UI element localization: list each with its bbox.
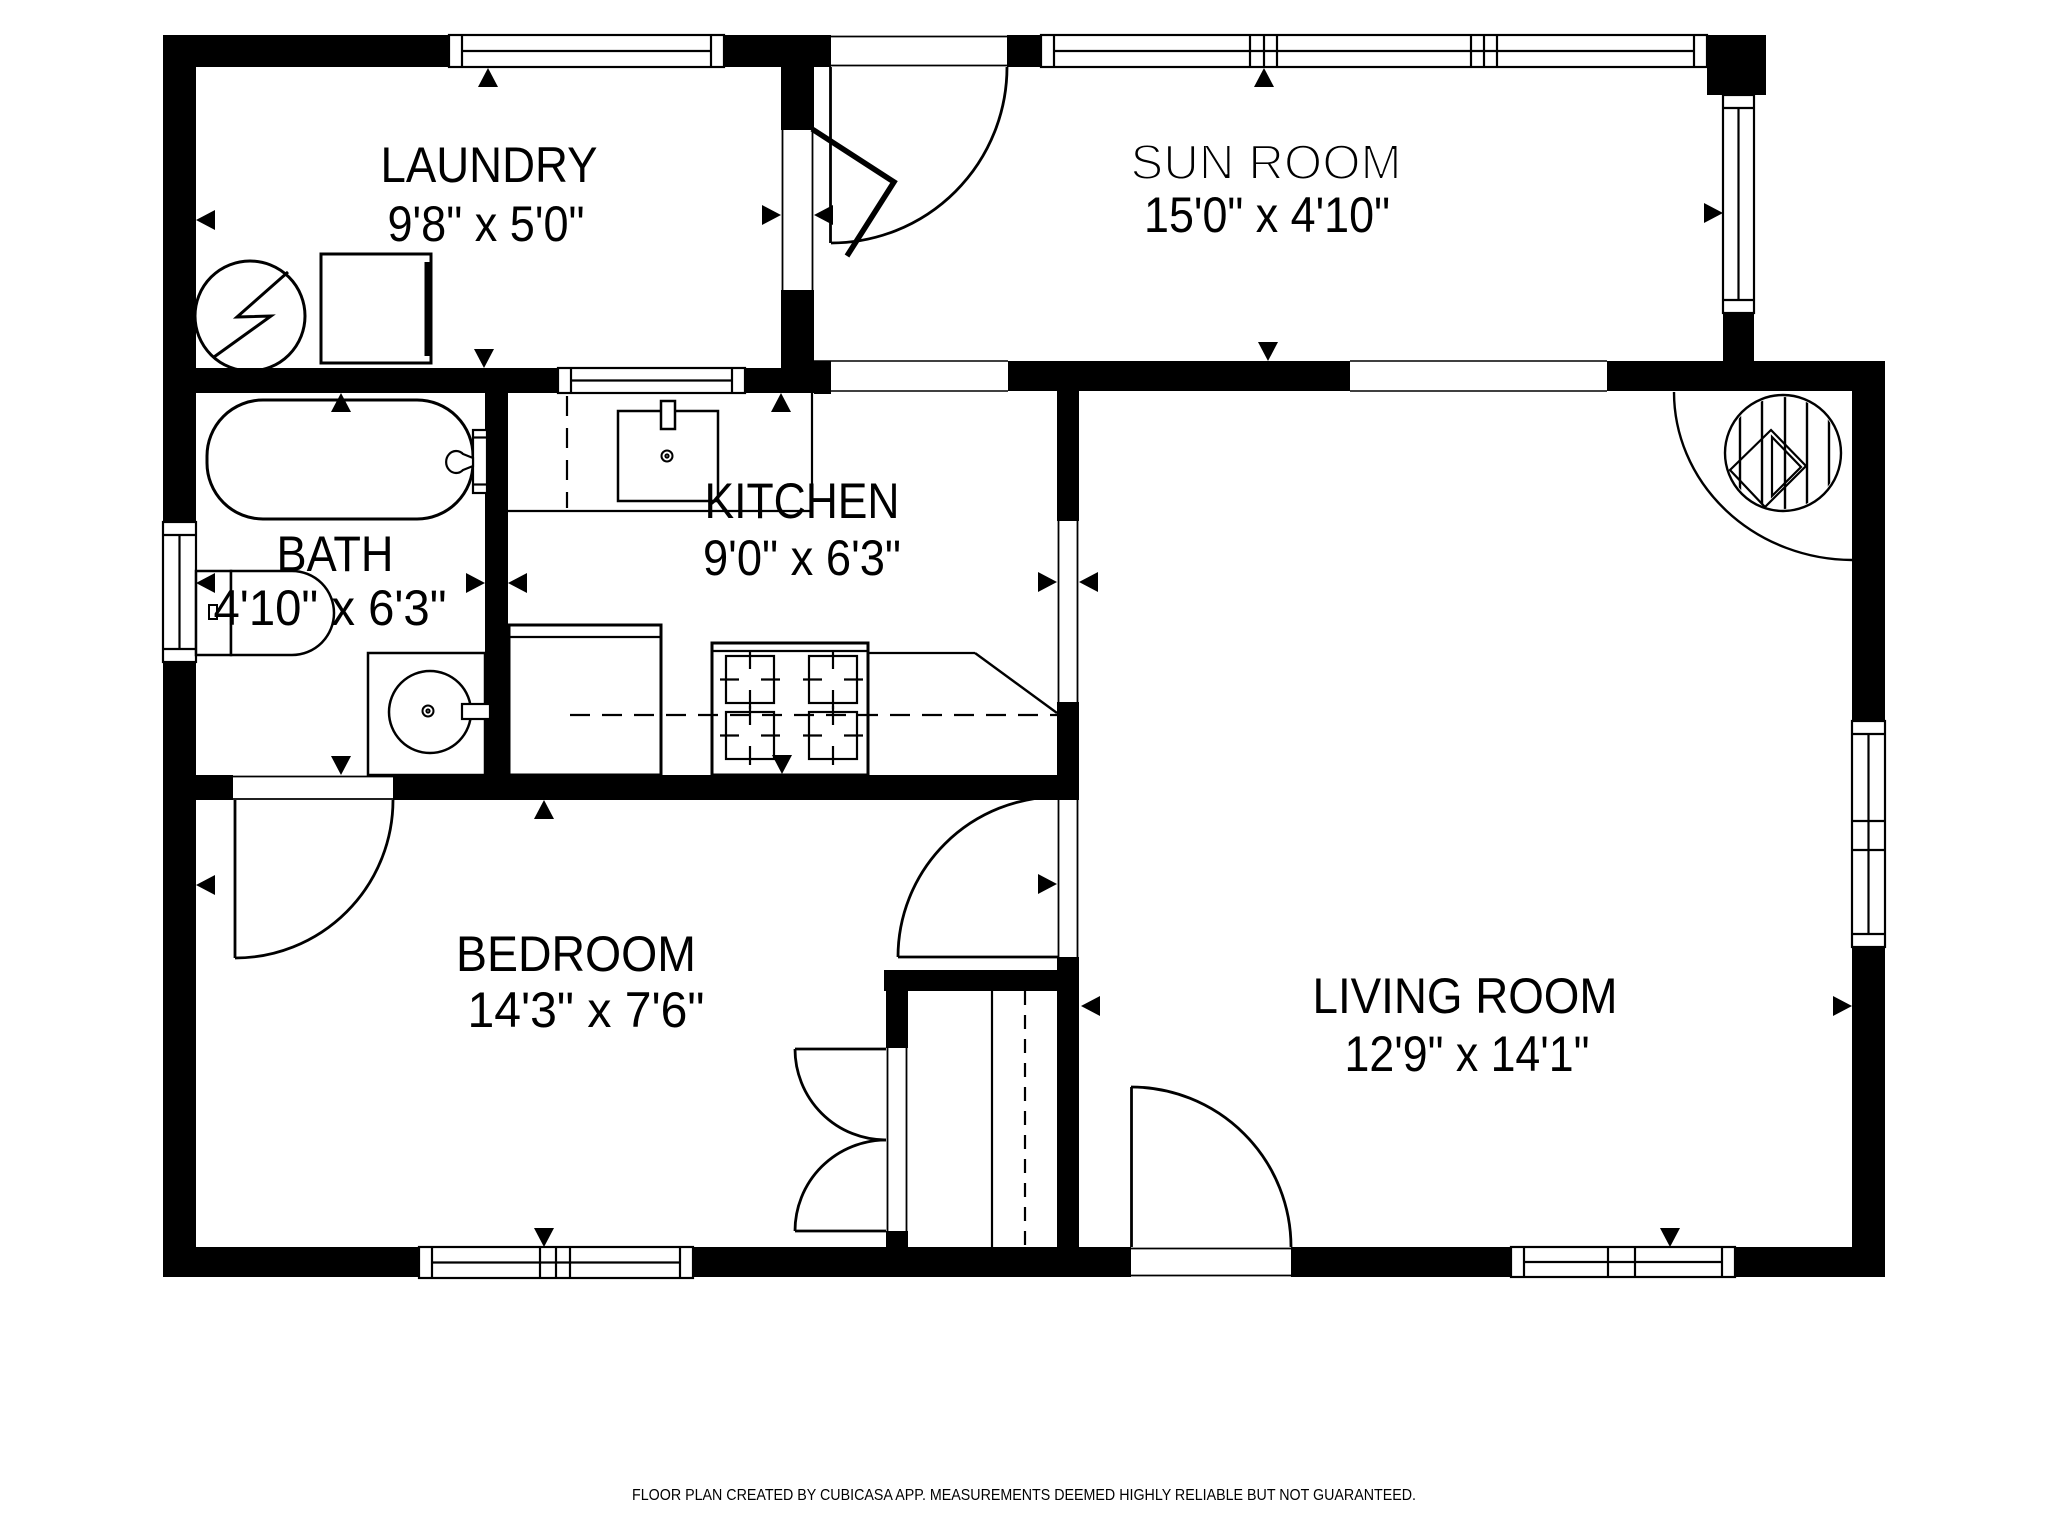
svg-text:SUN ROOM: SUN ROOM (1131, 136, 1402, 190)
svg-text:14'3" x 7'6": 14'3" x 7'6" (468, 982, 705, 1038)
svg-text:15'0" x 4'10": 15'0" x 4'10" (1144, 187, 1390, 243)
svg-text:KITCHEN: KITCHEN (705, 473, 900, 529)
svg-text:LIVING ROOM: LIVING ROOM (1313, 968, 1618, 1024)
svg-text:FLOOR PLAN CREATED BY CUBICASA: FLOOR PLAN CREATED BY CUBICASA APP. MEAS… (632, 1487, 1416, 1504)
svg-text:9'8" x 5'0": 9'8" x 5'0" (388, 196, 585, 252)
svg-text:9'0" x 6'3": 9'0" x 6'3" (703, 530, 901, 586)
svg-text:4'10" x 6'3": 4'10" x 6'3" (214, 580, 447, 636)
svg-text:BEDROOM: BEDROOM (456, 926, 696, 982)
svg-text:BATH: BATH (277, 526, 394, 582)
svg-text:LAUNDRY: LAUNDRY (381, 137, 598, 193)
svg-text:12'9" x 14'1": 12'9" x 14'1" (1345, 1026, 1590, 1082)
